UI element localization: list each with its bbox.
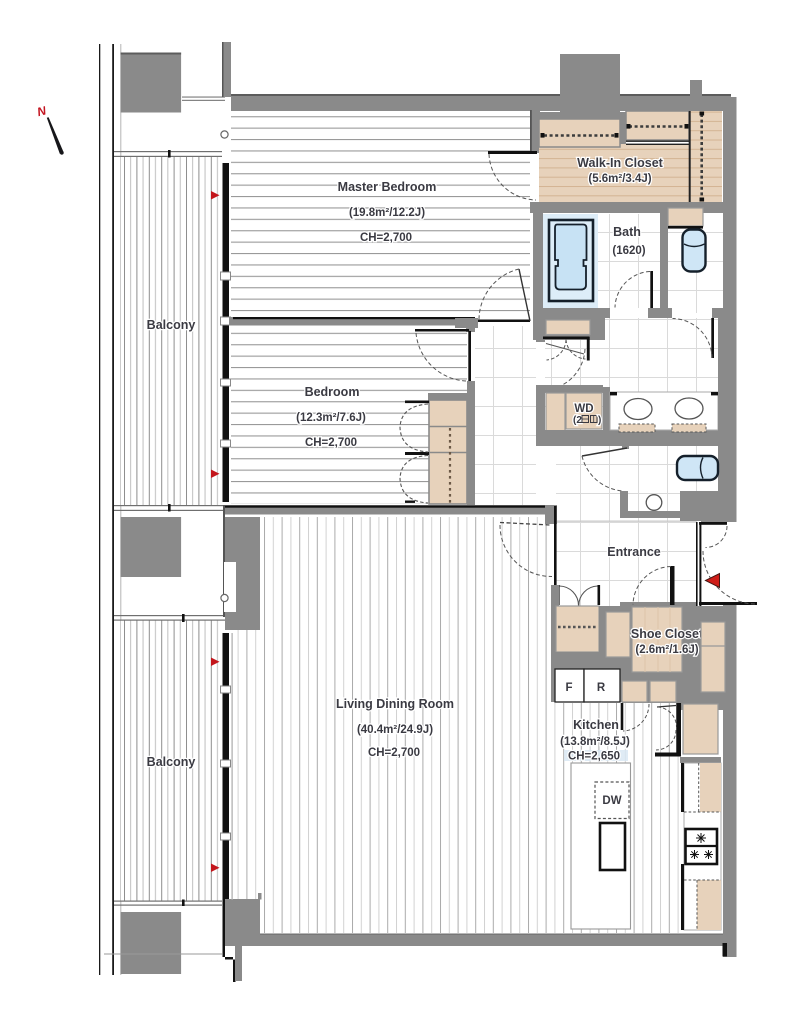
svg-text:Walk-In Closet: Walk-In Closet — [577, 156, 663, 170]
svg-text:(40.4m²/24.9J): (40.4m²/24.9J) — [357, 724, 433, 736]
svg-text:Entrance: Entrance — [607, 545, 661, 559]
svg-text:CH=2,700: CH=2,700 — [368, 747, 420, 759]
svg-text:R: R — [597, 682, 606, 694]
svg-text:F: F — [565, 682, 572, 694]
svg-text:Living Dining Room: Living Dining Room — [336, 697, 454, 711]
svg-text:(13.8m²/8.5J): (13.8m²/8.5J) — [560, 736, 630, 748]
svg-text:(2: (2 — [573, 415, 582, 426]
svg-text:Kitchen: Kitchen — [573, 718, 619, 732]
svg-text:Master Bedroom: Master Bedroom — [338, 180, 437, 194]
svg-text:WD: WD — [574, 403, 593, 415]
svg-text:Balcony: Balcony — [147, 318, 196, 332]
svg-text:(1620): (1620) — [612, 245, 645, 257]
svg-text:(12.3m²/7.6J): (12.3m²/7.6J) — [296, 412, 366, 424]
svg-text:Shoe Closet: Shoe Closet — [631, 627, 704, 641]
svg-text:DW: DW — [602, 795, 621, 807]
svg-text:Bedroom: Bedroom — [305, 385, 360, 399]
svg-text:): ) — [598, 415, 601, 426]
svg-text:CH=2,700: CH=2,700 — [305, 437, 357, 449]
svg-text:Bath: Bath — [613, 225, 641, 239]
svg-text:CH=2,700: CH=2,700 — [360, 232, 412, 244]
svg-text:(2.6m²/1.6J): (2.6m²/1.6J) — [635, 644, 698, 656]
svg-text:(5.6m²/3.4J): (5.6m²/3.4J) — [588, 173, 651, 185]
svg-text:Balcony: Balcony — [147, 755, 196, 769]
svg-text:CH=2,650: CH=2,650 — [568, 751, 620, 763]
svg-text:(19.8m²/12.2J): (19.8m²/12.2J) — [349, 207, 425, 219]
